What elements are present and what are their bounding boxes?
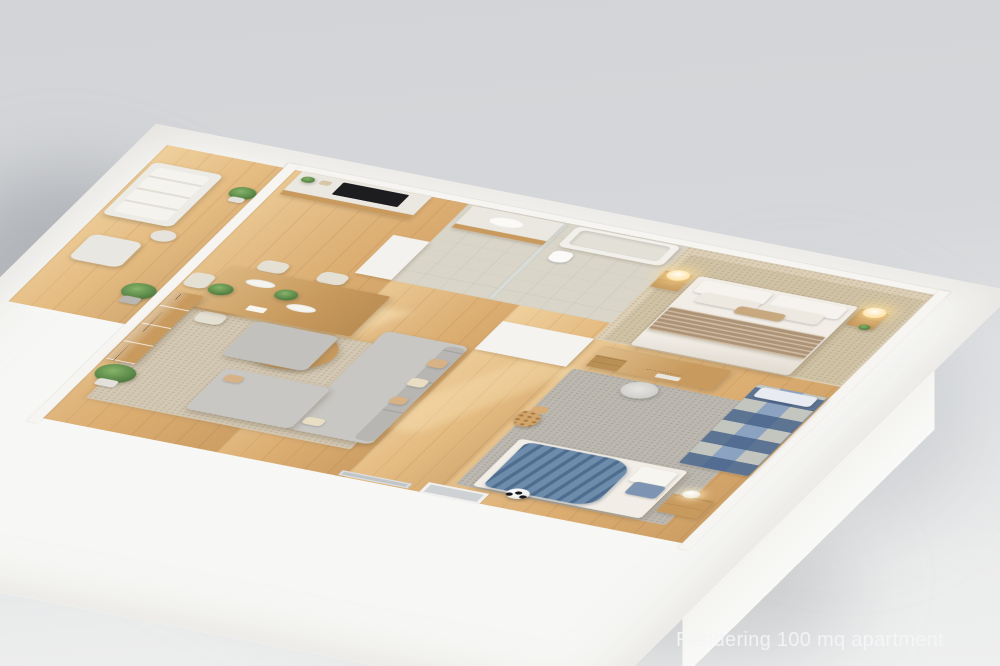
caption: Rendering 100 mq apartment: [676, 629, 944, 652]
render-canvas: Rendering 100 mq apartment: [0, 0, 1000, 666]
apartment-model: [43, 170, 935, 543]
